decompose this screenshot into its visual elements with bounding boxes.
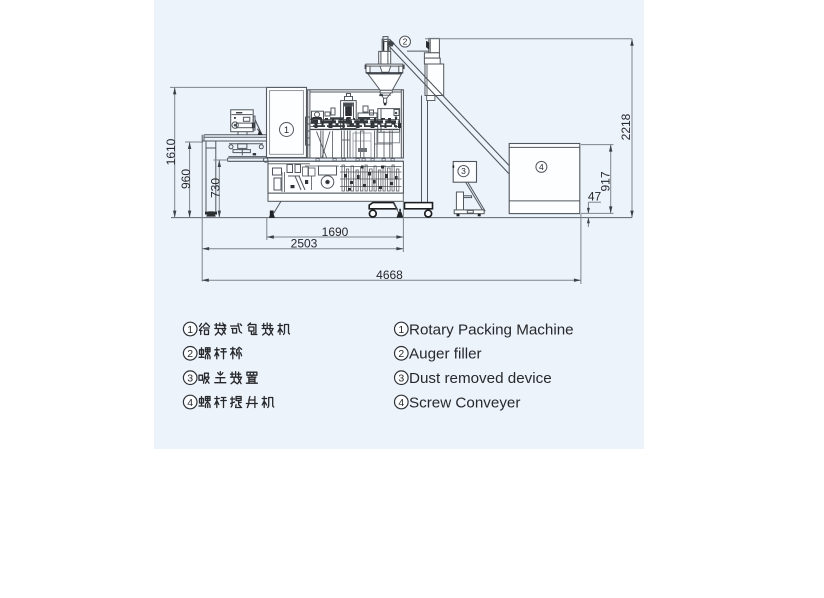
svg-text:4: 4: [539, 162, 544, 172]
svg-text:2503: 2503: [291, 237, 318, 251]
svg-text:2: 2: [403, 37, 408, 47]
svg-text:2: 2: [398, 348, 404, 360]
svg-text:1: 1: [398, 324, 404, 336]
svg-text:1610: 1610: [164, 138, 178, 165]
svg-text:Rotary Packing Machine: Rotary Packing Machine: [409, 321, 574, 338]
svg-text:1: 1: [187, 324, 193, 336]
svg-text:4: 4: [398, 397, 404, 409]
svg-text:Screw Conveyer: Screw Conveyer: [409, 394, 520, 411]
svg-text:2: 2: [187, 348, 193, 360]
svg-text:47: 47: [588, 189, 602, 203]
svg-text:1: 1: [284, 125, 289, 136]
svg-text:3: 3: [398, 372, 404, 384]
svg-text:Dust removed device: Dust removed device: [409, 370, 552, 387]
svg-text:Auger filler: Auger filler: [409, 346, 482, 363]
svg-text:3: 3: [461, 166, 466, 176]
svg-text:730: 730: [209, 178, 223, 198]
svg-text:3: 3: [187, 372, 193, 384]
svg-text:1690: 1690: [322, 225, 349, 239]
svg-text:960: 960: [179, 169, 193, 189]
svg-text:4668: 4668: [376, 268, 403, 282]
svg-text:2218: 2218: [619, 113, 633, 140]
svg-text:4: 4: [187, 397, 193, 409]
